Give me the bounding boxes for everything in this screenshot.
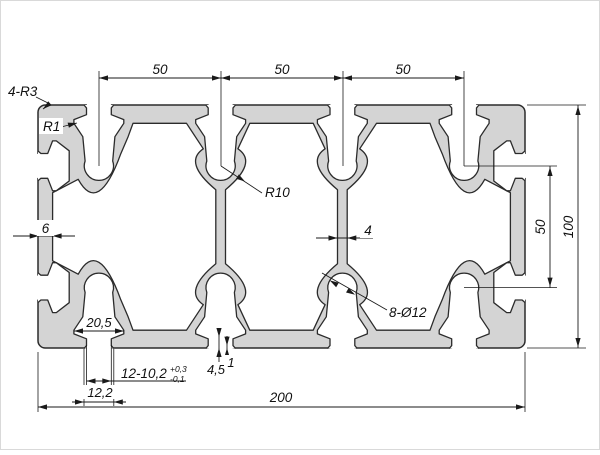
dimension-arrow: [221, 75, 230, 80]
dimension-arrow: [455, 75, 464, 80]
mouth-gap-left: [37, 276, 40, 300]
mouth-gap-left: [37, 154, 40, 178]
dim-label-width: 200: [269, 390, 293, 405]
dimension-arrow: [102, 378, 111, 383]
mouth-gap-bottom: [87, 347, 111, 350]
dimension-arrow: [547, 278, 552, 287]
dim-label-lip-edge: 1: [227, 355, 234, 370]
dimension-arrow: [87, 378, 96, 383]
mouth-gap-bottom: [452, 347, 476, 350]
dim-label-slot-tol-upper: +0,3: [170, 364, 187, 374]
dimension-arrow: [575, 106, 580, 115]
dim-label-height: 100: [561, 215, 576, 238]
dimension-arrow: [212, 75, 221, 80]
drawing-frame: 4-R3R1505050R10648-Ø125010020,512-10,2+0…: [0, 0, 600, 450]
mouth-gap-top: [330, 104, 354, 107]
dim-label-lip-depth: 4,5: [207, 362, 226, 377]
dimension-arrow: [75, 399, 84, 404]
dim-label-wall-thickness: 6: [42, 221, 50, 236]
dim-label-chamber-width: 20,5: [85, 315, 112, 330]
dim-label-corner-radius: 4-R3: [8, 84, 38, 99]
dim-label-pitch-3: 50: [395, 62, 411, 77]
dimension-arrow: [99, 75, 108, 80]
dim-label-slot-tol-lower: -0,1: [170, 374, 185, 384]
dim-label-bore-radius: R10: [265, 185, 290, 200]
mouth-gap-bottom: [209, 347, 233, 350]
dim-label-web-thickness: 4: [364, 223, 372, 238]
dim-label-slot-spec: 12-10,2: [121, 366, 167, 381]
dimension-arrow: [343, 75, 352, 80]
dimension-arrow: [114, 399, 123, 404]
dimension-arrow: [575, 338, 580, 347]
dimension-arrow: [516, 404, 525, 409]
dimension-arrow: [334, 75, 343, 80]
dimension-arrow: [547, 167, 552, 176]
dimension-arrow: [216, 348, 221, 357]
dim-label-mouth-width: 12,2: [87, 385, 113, 400]
dim-label-pitch-2: 50: [274, 62, 290, 77]
mouth-gap-bottom: [330, 347, 354, 350]
profile-technical-drawing: 4-R3R1505050R10648-Ø125010020,512-10,2+0…: [0, 0, 600, 450]
dim-label-lip-radius: R1: [43, 119, 60, 134]
dim-label-pitch-1: 50: [152, 62, 168, 77]
dimension-arrow: [38, 404, 47, 409]
dim-label-side-pitch: 50: [533, 219, 548, 235]
dim-label-holes: 8-Ø12: [389, 305, 427, 320]
